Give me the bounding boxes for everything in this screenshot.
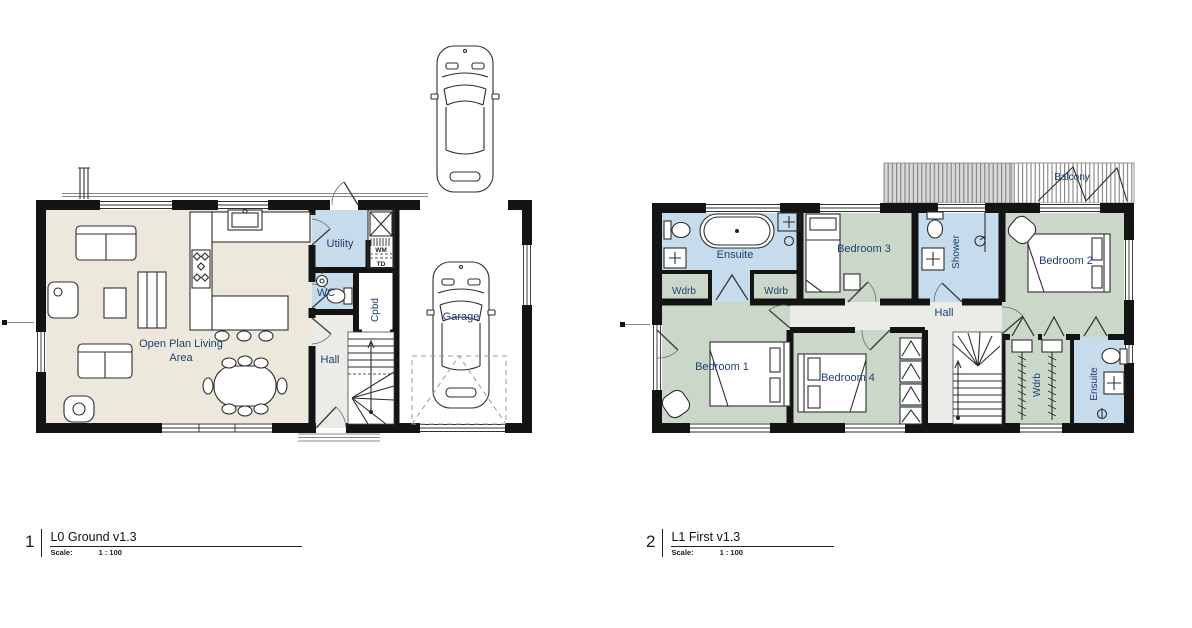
dining-chair: [222, 358, 236, 368]
plan-title: L1 First v1.3: [671, 530, 834, 544]
ground-level-marker: [2, 320, 34, 325]
toilet-icon: [664, 221, 671, 239]
first-floor-plan: Balcony: [620, 163, 1134, 433]
plan-number: 1: [25, 529, 41, 552]
dining-chair: [203, 378, 213, 394]
plan-title: L0 Ground v1.3: [50, 530, 302, 544]
first-floor-titleblock: 2 L1 First v1.3 Scale: 1 : 100: [646, 529, 834, 557]
canopy-line: [62, 168, 428, 199]
bed-single: [806, 214, 840, 292]
coffee-table: [104, 288, 126, 318]
label-ensuite-rear: Ensuite: [1089, 367, 1100, 401]
label-wdrb-front-left: Wdrb: [672, 286, 696, 297]
dining-chair: [222, 404, 236, 414]
scale-value: 1 : 100: [720, 548, 743, 557]
ground-floor-plan: WM TD: [2, 46, 532, 441]
toilet-icon: [1120, 349, 1127, 364]
label-bedroom1: Bedroom 1: [695, 361, 749, 373]
label-garage: Garage: [443, 311, 480, 323]
staircase-ground: [348, 332, 394, 424]
floorplan-sheet: WM TD: [0, 0, 1192, 628]
label-wdrb-rear: Wdrb: [1032, 373, 1043, 397]
label-hall-ground: Hall: [321, 354, 340, 366]
dining-chair: [254, 358, 268, 368]
staircase-first: [953, 332, 1002, 424]
label-balcony: Balcony: [1054, 172, 1090, 183]
label-shower: Shower: [951, 234, 962, 269]
armchair: [64, 396, 94, 422]
dining-table: [214, 366, 276, 406]
label-open-plan-living-2: Area: [169, 352, 193, 364]
label-cpbd: Cpbd: [370, 298, 381, 322]
label-bedroom4: Bedroom 4: [821, 372, 875, 384]
label-utility: Utility: [327, 238, 354, 250]
label-bedroom3: Bedroom 3: [837, 243, 891, 255]
label-bedroom2: Bedroom 2: [1039, 255, 1093, 267]
ground-floor-titleblock: 1 L0 Ground v1.3 Scale: 1 : 100: [25, 529, 302, 557]
scale-value: 1 : 100: [99, 548, 122, 557]
scale-label: Scale:: [671, 548, 693, 557]
stove-icon: [48, 282, 78, 318]
scale-label: Scale:: [50, 548, 72, 557]
dining-chair: [254, 404, 268, 414]
kitchen-island: [212, 296, 288, 330]
garage-door-opening: [420, 200, 508, 210]
bedside-table: [844, 274, 860, 290]
cabinet: [138, 272, 166, 328]
tumble-dryer-label: TD: [377, 261, 386, 268]
room-hall-first: [790, 302, 1002, 330]
basin-icon: [317, 276, 328, 287]
dining-chair: [238, 356, 252, 366]
plan-number: 2: [646, 529, 662, 552]
utility-appliance-bay: WM TD: [368, 210, 394, 268]
bed-double: [710, 342, 790, 406]
balcony: Balcony: [884, 163, 1134, 203]
driveway-car: [431, 46, 499, 192]
first-level-marker: [620, 322, 650, 327]
dining-chair: [277, 378, 287, 394]
toilet-icon: [927, 212, 943, 219]
bar-stool: [237, 331, 251, 341]
garage-car: [427, 262, 495, 408]
label-wdrb-front-right: Wdrb: [764, 286, 788, 297]
wardrobe-shelves: [900, 338, 922, 424]
label-wc: WC: [317, 287, 335, 299]
label-ensuite-front: Ensuite: [717, 249, 754, 261]
bar-stool: [259, 331, 273, 341]
label-hall-first: Hall: [935, 307, 954, 319]
porch-steps: [298, 434, 380, 441]
label-open-plan-living-1: Open Plan Living: [139, 338, 223, 350]
dining-chair: [238, 406, 252, 416]
washing-machine-label: WM: [375, 247, 387, 254]
